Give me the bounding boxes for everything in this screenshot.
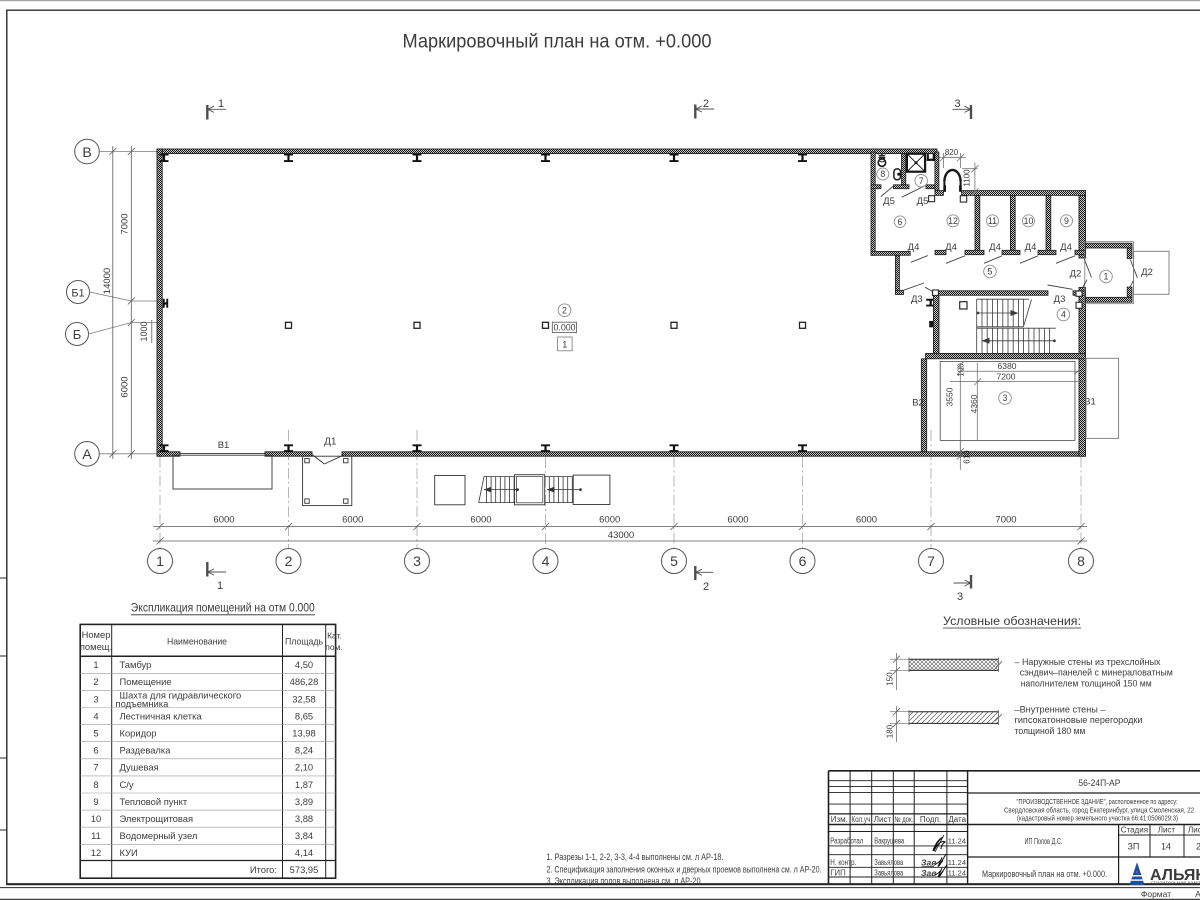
svg-text:Разработал: Разработал <box>830 837 863 846</box>
svg-text:2,10: 2,10 <box>295 762 313 773</box>
svg-text:7: 7 <box>927 553 935 569</box>
svg-text:5: 5 <box>93 728 98 739</box>
svg-text:Лестничная клетка: Лестничная клетка <box>120 710 203 721</box>
svg-text:12: 12 <box>91 847 101 858</box>
svg-text:3: 3 <box>954 98 960 110</box>
svg-text:3. Экспликация полов выполнена: 3. Экспликация полов выполнена см. л АР-… <box>547 876 703 886</box>
svg-text:7: 7 <box>919 176 924 186</box>
svg-text:6000: 6000 <box>727 515 748 526</box>
svg-text:Раздевалка: Раздевалка <box>120 745 172 756</box>
svg-text:8: 8 <box>880 169 885 179</box>
svg-text:11: 11 <box>91 830 101 841</box>
svg-text:Листов: Листов <box>1188 826 1200 835</box>
svg-text:3,88: 3,88 <box>295 813 313 824</box>
svg-text:Коридор: Коридор <box>120 728 157 739</box>
svg-text:Д4: Д4 <box>989 242 1001 253</box>
svg-text:помещ.: помещ. <box>80 641 112 652</box>
svg-text:6000: 6000 <box>856 515 877 526</box>
svg-text:подъемника: подъемника <box>116 698 170 709</box>
svg-text:Кол.уч: Кол.уч <box>851 815 870 824</box>
svg-text:Помещение: Помещение <box>120 676 172 687</box>
svg-text:Лист: Лист <box>1158 826 1176 835</box>
svg-text:2: 2 <box>93 676 98 687</box>
svg-text:(кадастровый номер земельного: (кадастровый номер земельного участка 66… <box>1017 814 1178 823</box>
svg-text:Тепловой пункт: Тепловой пункт <box>120 796 188 807</box>
svg-text:2: 2 <box>703 98 709 110</box>
svg-text:6000: 6000 <box>213 515 234 526</box>
svg-text:6000: 6000 <box>342 515 363 526</box>
svg-text:3,84: 3,84 <box>295 830 313 841</box>
svg-text:Лист: Лист <box>874 815 892 824</box>
svg-text:Д2: Д2 <box>1141 267 1153 278</box>
svg-text:Д4: Д4 <box>1060 242 1072 253</box>
svg-text:Формат: Формат <box>1141 889 1171 899</box>
svg-text:4,50: 4,50 <box>295 659 313 670</box>
svg-text:1: 1 <box>93 659 98 670</box>
svg-text:Водомерный узел: Водомерный узел <box>120 830 198 841</box>
svg-text:180: 180 <box>886 724 895 738</box>
svg-text:7200: 7200 <box>997 371 1016 381</box>
svg-text:Номер: Номер <box>82 629 111 640</box>
svg-text:наполнителем толщиной 150 мм: наполнителем толщиной 150 мм <box>1021 678 1152 689</box>
svg-text:4: 4 <box>542 553 550 569</box>
svg-text:Д4: Д4 <box>945 242 957 253</box>
svg-text:8: 8 <box>1077 553 1085 569</box>
svg-text:Д5: Д5 <box>917 196 929 207</box>
svg-text:4,14: 4,14 <box>295 847 313 858</box>
svg-text:150: 150 <box>886 672 895 686</box>
svg-text:2: 2 <box>285 553 293 569</box>
svg-text:Электрощитовая: Электрощитовая <box>120 813 194 824</box>
svg-text:5: 5 <box>988 267 993 277</box>
svg-text:Тамбур: Тамбур <box>120 659 152 670</box>
svg-text:11.24: 11.24 <box>948 869 966 878</box>
svg-text:Завьялова: Завьялова <box>874 869 903 878</box>
svg-text:Маркировочный план на отм. +0.: Маркировочный план на отм. +0.000 <box>403 32 712 53</box>
svg-text:–Внутренние стены –: –Внутренние стены – <box>1015 705 1107 716</box>
svg-text:А: А <box>1195 889 1200 899</box>
svg-text:№ док.: № док. <box>894 815 913 824</box>
svg-text:3: 3 <box>957 591 963 603</box>
svg-text:610: 610 <box>963 450 972 464</box>
svg-text:Д1: Д1 <box>324 437 337 448</box>
svg-text:толщиной 180 мм: толщиной 180 мм <box>1015 726 1086 737</box>
svg-text:11.24: 11.24 <box>948 858 966 867</box>
svg-text:9: 9 <box>93 796 98 807</box>
svg-text:строительная компания: строительная компания <box>1151 881 1200 886</box>
svg-text:14000: 14000 <box>102 268 113 294</box>
svg-text:4: 4 <box>93 710 98 721</box>
svg-text:8,65: 8,65 <box>295 710 313 721</box>
svg-text:Н. контр.: Н. контр. <box>830 858 856 867</box>
svg-text:43000: 43000 <box>608 530 634 541</box>
svg-text:ИП Попов Д.С.: ИП Попов Д.С. <box>1025 837 1063 846</box>
svg-text:Зав: Зав <box>921 858 936 868</box>
svg-text:Душевая: Душевая <box>120 762 159 773</box>
svg-text:1000: 1000 <box>139 321 149 341</box>
svg-text:3: 3 <box>93 694 98 705</box>
svg-text:1: 1 <box>1104 272 1109 282</box>
svg-text:Д5: Д5 <box>883 196 895 207</box>
svg-text:гипсокатонновые перегородки: гипсокатонновые перегородки <box>1015 715 1143 726</box>
svg-text:В2: В2 <box>912 398 924 409</box>
svg-text:КУИ: КУИ <box>120 847 138 858</box>
svg-text:Дата: Дата <box>948 815 966 824</box>
svg-text:2: 2 <box>703 581 709 593</box>
svg-text:1100: 1100 <box>963 169 972 187</box>
svg-text:Д4: Д4 <box>1025 242 1037 253</box>
svg-text:– Наружные стены из трехслойны: – Наружные стены из трехслойных <box>1015 657 1161 668</box>
svg-text:1: 1 <box>562 340 567 351</box>
svg-text:486,28: 486,28 <box>290 676 319 687</box>
svg-text:4360: 4360 <box>969 394 979 413</box>
svg-text:Стадия: Стадия <box>1121 826 1148 835</box>
svg-text:6000: 6000 <box>599 515 620 526</box>
svg-text:Д2: Д2 <box>1070 269 1082 280</box>
svg-text:11: 11 <box>988 216 997 226</box>
svg-text:В1: В1 <box>218 440 230 451</box>
svg-text:А: А <box>82 446 92 462</box>
svg-text:Изм.: Изм. <box>831 815 848 824</box>
svg-text:13,98: 13,98 <box>292 728 315 739</box>
svg-text:7000: 7000 <box>995 515 1016 526</box>
svg-text:6: 6 <box>898 217 903 227</box>
svg-text:32,58: 32,58 <box>292 694 315 705</box>
svg-text:ЗП: ЗП <box>1127 842 1139 852</box>
svg-text:2: 2 <box>562 305 567 315</box>
svg-text:6380: 6380 <box>998 361 1017 371</box>
svg-text:Б1: Б1 <box>71 287 84 299</box>
svg-text:9: 9 <box>1064 216 1069 226</box>
svg-text:Экспликация помещений на отм 0: Экспликация помещений на отм 0.000 <box>131 601 315 615</box>
svg-text:3: 3 <box>413 553 421 569</box>
svg-text:Д3: Д3 <box>911 294 923 305</box>
svg-text:7: 7 <box>93 762 98 773</box>
svg-text:Подп.: Подп. <box>920 815 941 824</box>
svg-text:12: 12 <box>948 216 958 226</box>
svg-text:3,89: 3,89 <box>295 796 313 807</box>
svg-text:1,87: 1,87 <box>295 779 313 790</box>
svg-text:8: 8 <box>93 779 98 790</box>
svg-text:3550: 3550 <box>944 387 954 406</box>
svg-text:14: 14 <box>1161 842 1171 852</box>
svg-text:пом.: пом. <box>325 642 343 652</box>
svg-text:Д3: Д3 <box>1054 294 1066 305</box>
svg-text:7000: 7000 <box>120 213 131 234</box>
svg-text:3: 3 <box>1003 393 1008 403</box>
svg-text:1: 1 <box>217 580 223 592</box>
svg-text:6: 6 <box>799 553 807 569</box>
svg-text:2: 2 <box>1196 842 1200 852</box>
svg-text:10: 10 <box>1024 216 1034 226</box>
svg-text:Зав: Зав <box>921 868 936 878</box>
svg-text:8,24: 8,24 <box>295 745 313 756</box>
svg-text:1: 1 <box>156 553 164 569</box>
svg-text:0.000: 0.000 <box>553 322 575 332</box>
svg-text:820: 820 <box>945 148 959 157</box>
svg-text:Итого:: Итого: <box>250 864 277 875</box>
svg-text:573,95: 573,95 <box>290 864 319 875</box>
svg-text:ГИП: ГИП <box>830 869 845 878</box>
svg-text:100: 100 <box>957 363 966 377</box>
svg-text:Площадь: Площадь <box>285 636 323 647</box>
svg-text:Условные обозначения:: Условные обозначения: <box>943 614 1081 628</box>
svg-text:Маркировочный план на отм. +0.: Маркировочный план на отм. +0.000. <box>982 869 1107 879</box>
svg-text:56-24П-АР: 56-24П-АР <box>1078 778 1120 789</box>
svg-text:Завьялова: Завьялова <box>874 858 903 867</box>
svg-text:сэндвич–панелей с минераловатн: сэндвич–панелей с минераловатным <box>1020 668 1173 679</box>
svg-text:Вакрушева: Вакрушева <box>874 837 904 846</box>
svg-text:1: 1 <box>218 98 224 110</box>
svg-text:С/у: С/у <box>120 779 134 790</box>
svg-text:Б: Б <box>73 327 82 342</box>
svg-text:11.24: 11.24 <box>948 837 966 846</box>
svg-text:Кат.: Кат. <box>327 631 342 641</box>
svg-text:2. Спецификация заполнения око: 2. Спецификация заполнения оконных и две… <box>547 864 822 874</box>
svg-text:5: 5 <box>670 553 678 569</box>
svg-text:6000: 6000 <box>120 376 131 397</box>
svg-text:В: В <box>82 144 91 160</box>
svg-text:Наименование: Наименование <box>167 636 227 647</box>
svg-text:6: 6 <box>93 745 98 756</box>
svg-text:4: 4 <box>1061 310 1066 320</box>
svg-text:10: 10 <box>91 813 101 824</box>
svg-text:1. Разрезы 1-1, 2-2, 3-3, 4-4: 1. Разрезы 1-1, 2-2, 3-3, 4-4 выполнены … <box>547 852 724 862</box>
svg-text:Д4: Д4 <box>908 242 920 253</box>
svg-text:6000: 6000 <box>470 515 491 526</box>
